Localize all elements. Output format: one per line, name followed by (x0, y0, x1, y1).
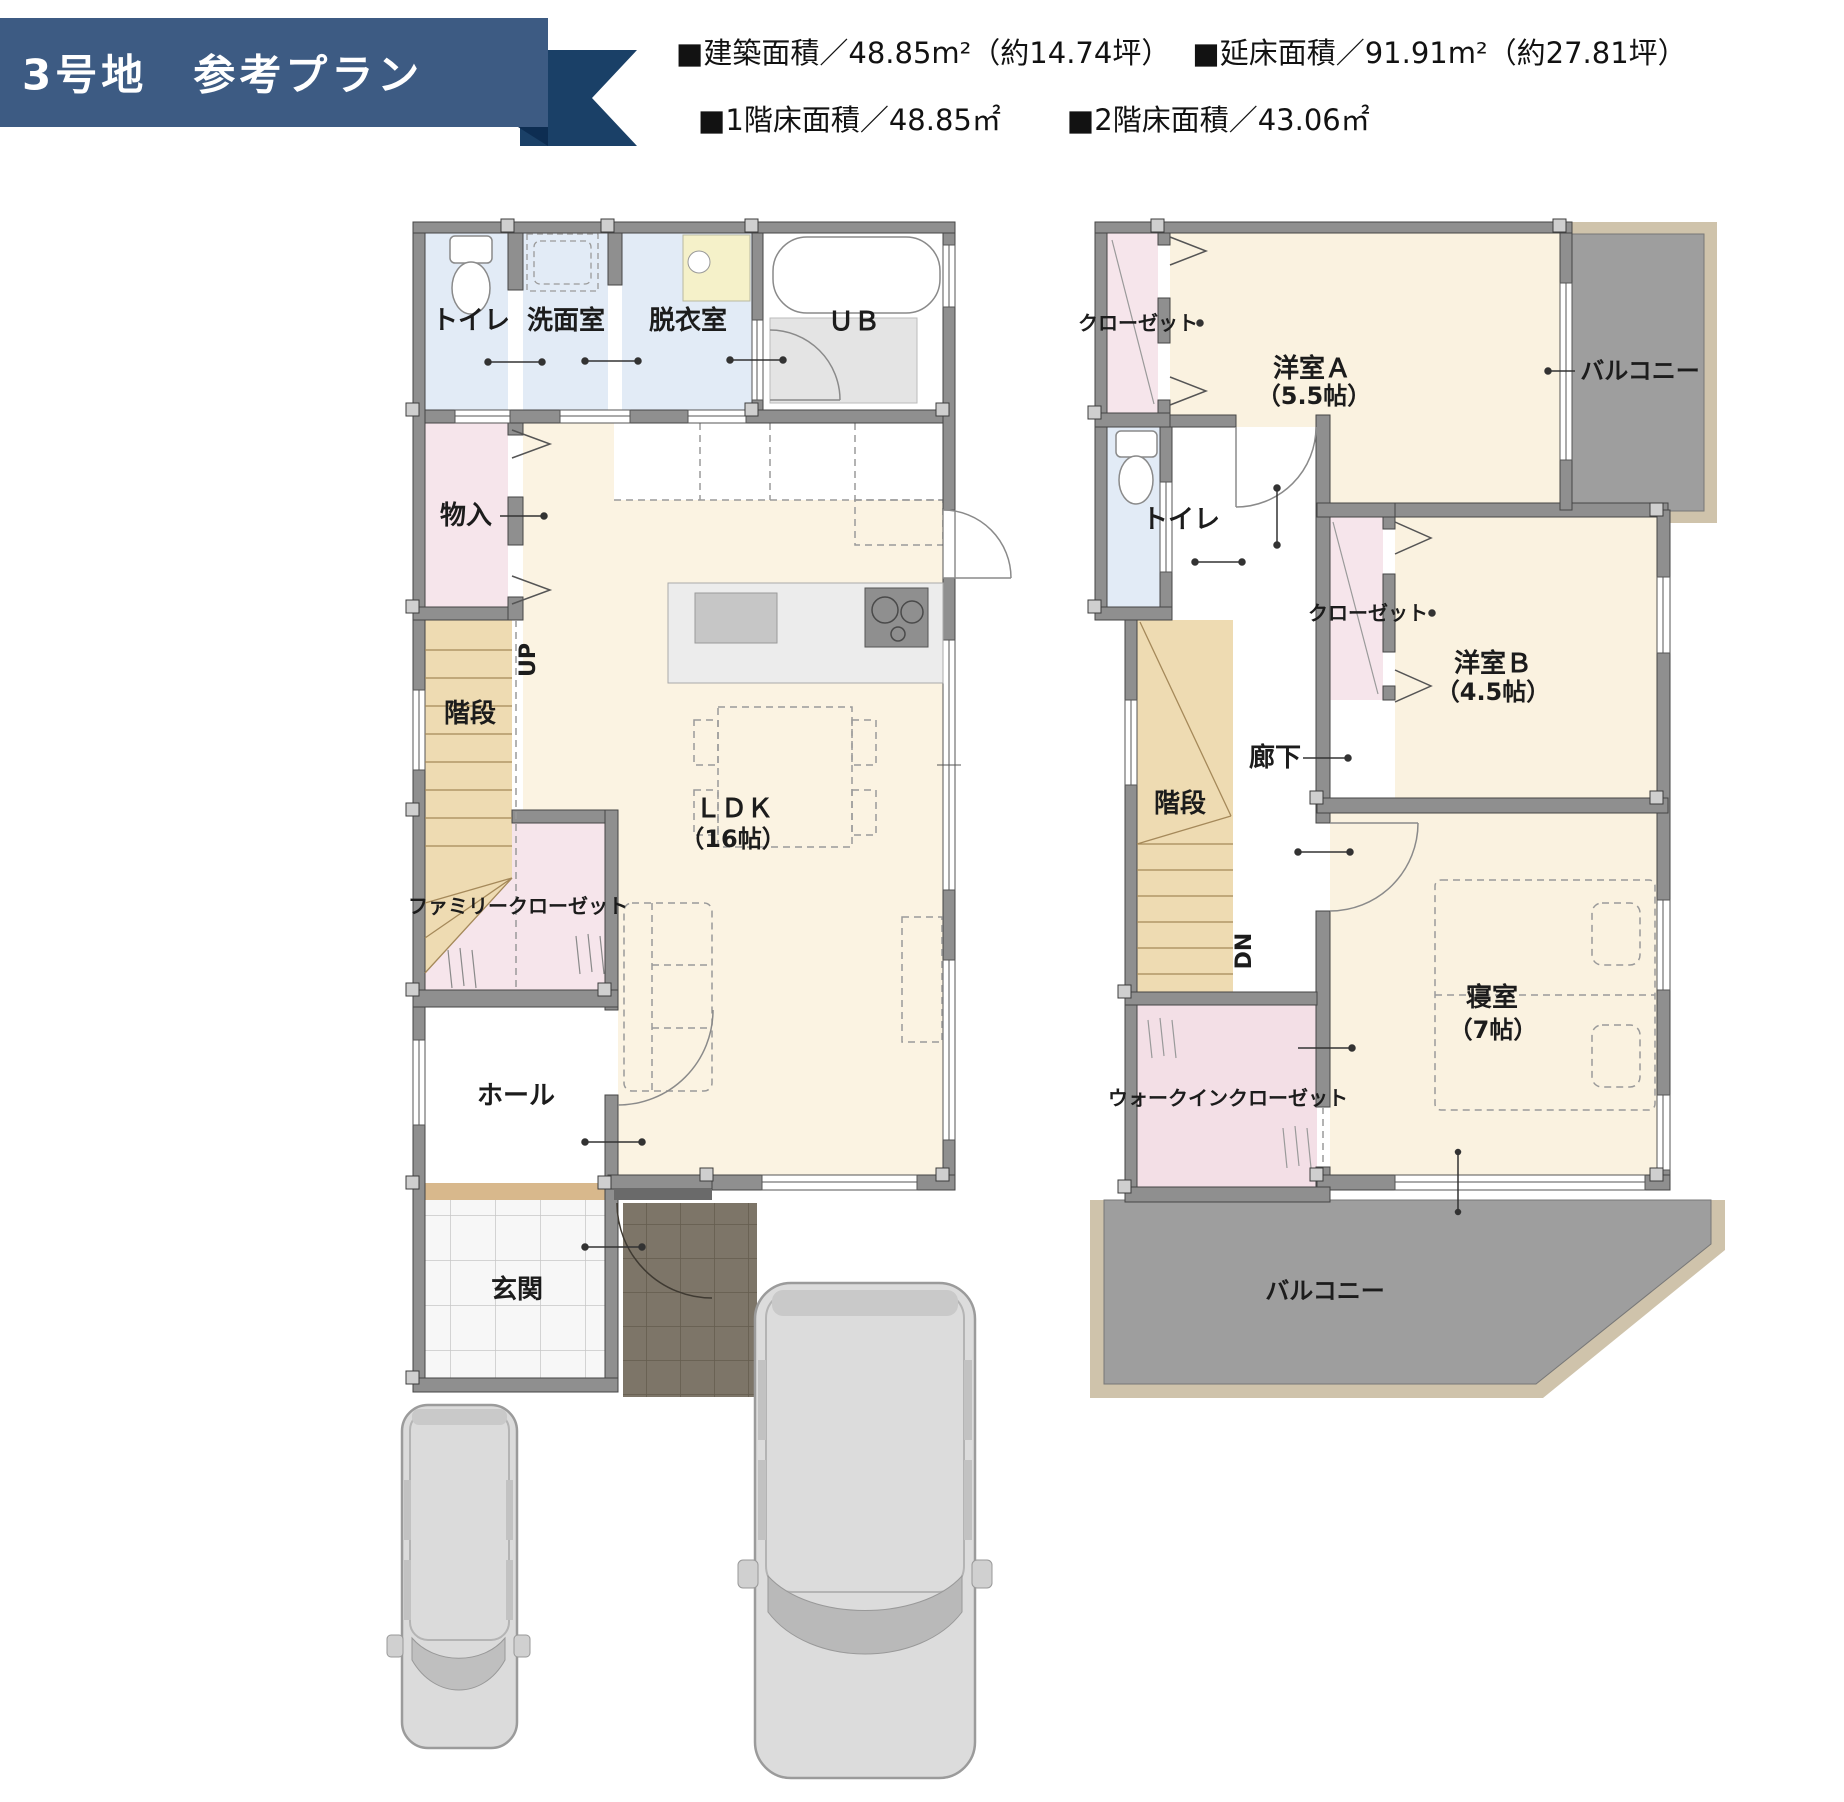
room-label-ldk: ＬＤＫ (695, 796, 773, 822)
stairs-dn-label: DN (1234, 933, 1256, 970)
car-large (738, 1283, 992, 1778)
room-label-room-a: 洋室Ａ (1273, 356, 1351, 382)
room-label-hall: ホール (477, 1083, 555, 1109)
room-label-family-closet: ファミリークローゼット (408, 896, 628, 916)
car-small (387, 1405, 530, 1748)
room-label-corridor: 廊下 (1249, 745, 1301, 771)
area-specs-line2: ■1階床面積／48.85㎡ ■2階床面積／43.06㎡ (698, 97, 1370, 139)
room-size-bedroom: （7帖） (1449, 1018, 1538, 1042)
room-label-closet-b: クローゼット (1308, 603, 1428, 623)
room-label-toilet-2f: トイレ (1142, 507, 1220, 533)
room-label-toilet-1f: トイレ (432, 308, 510, 334)
room-size-room-a: （5.5帖） (1257, 384, 1372, 408)
room-size-room-b: （4.5帖） (1436, 680, 1551, 704)
stairs-up-label: UP (518, 643, 540, 677)
room-label-closet-a: クローゼット (1078, 313, 1198, 333)
building-area: ■建築面積／48.85m²（約14.74坪） (676, 30, 1170, 72)
room-size-ldk: （16帖） (680, 827, 785, 851)
floor-plan-page: 3号地 参考プラン ■建築面積／48.85m²（約14.74坪） ■延床面積／9… (0, 0, 1844, 1802)
floor1-area: ■1階床面積／48.85㎡ (698, 97, 1001, 139)
room-label-wic: ウォークインクローゼット (1108, 1088, 1348, 1108)
room-label-balcony-bottom: バルコニー (1265, 1279, 1385, 1303)
room-label-washroom: 洗面室 (527, 308, 605, 334)
room-label-storage: 物入 (440, 503, 492, 529)
floor2-area: ■2階床面積／43.06㎡ (1067, 97, 1370, 139)
room-label-bath: ＵＢ (828, 309, 880, 335)
room-label-stairs-1f: 階段 (444, 701, 496, 727)
floor-plan-graphics (0, 0, 1844, 1802)
room-label-stairs-2f: 階段 (1154, 791, 1206, 817)
room-label-dressing: 脱衣室 (649, 308, 727, 334)
page-title: 3号地 参考プラン (22, 42, 423, 103)
area-specs-line1: ■建築面積／48.85m²（約14.74坪） ■延床面積／91.91m²（約27… (676, 30, 1687, 72)
room-label-bedroom: 寝室 (1466, 985, 1518, 1011)
total-floor-area: ■延床面積／91.91m²（約27.81坪） (1192, 30, 1686, 72)
room-label-balcony-top: バルコニー (1580, 359, 1700, 383)
room-label-entrance: 玄関 (491, 1277, 543, 1303)
room-label-room-b: 洋室Ｂ (1454, 651, 1532, 677)
